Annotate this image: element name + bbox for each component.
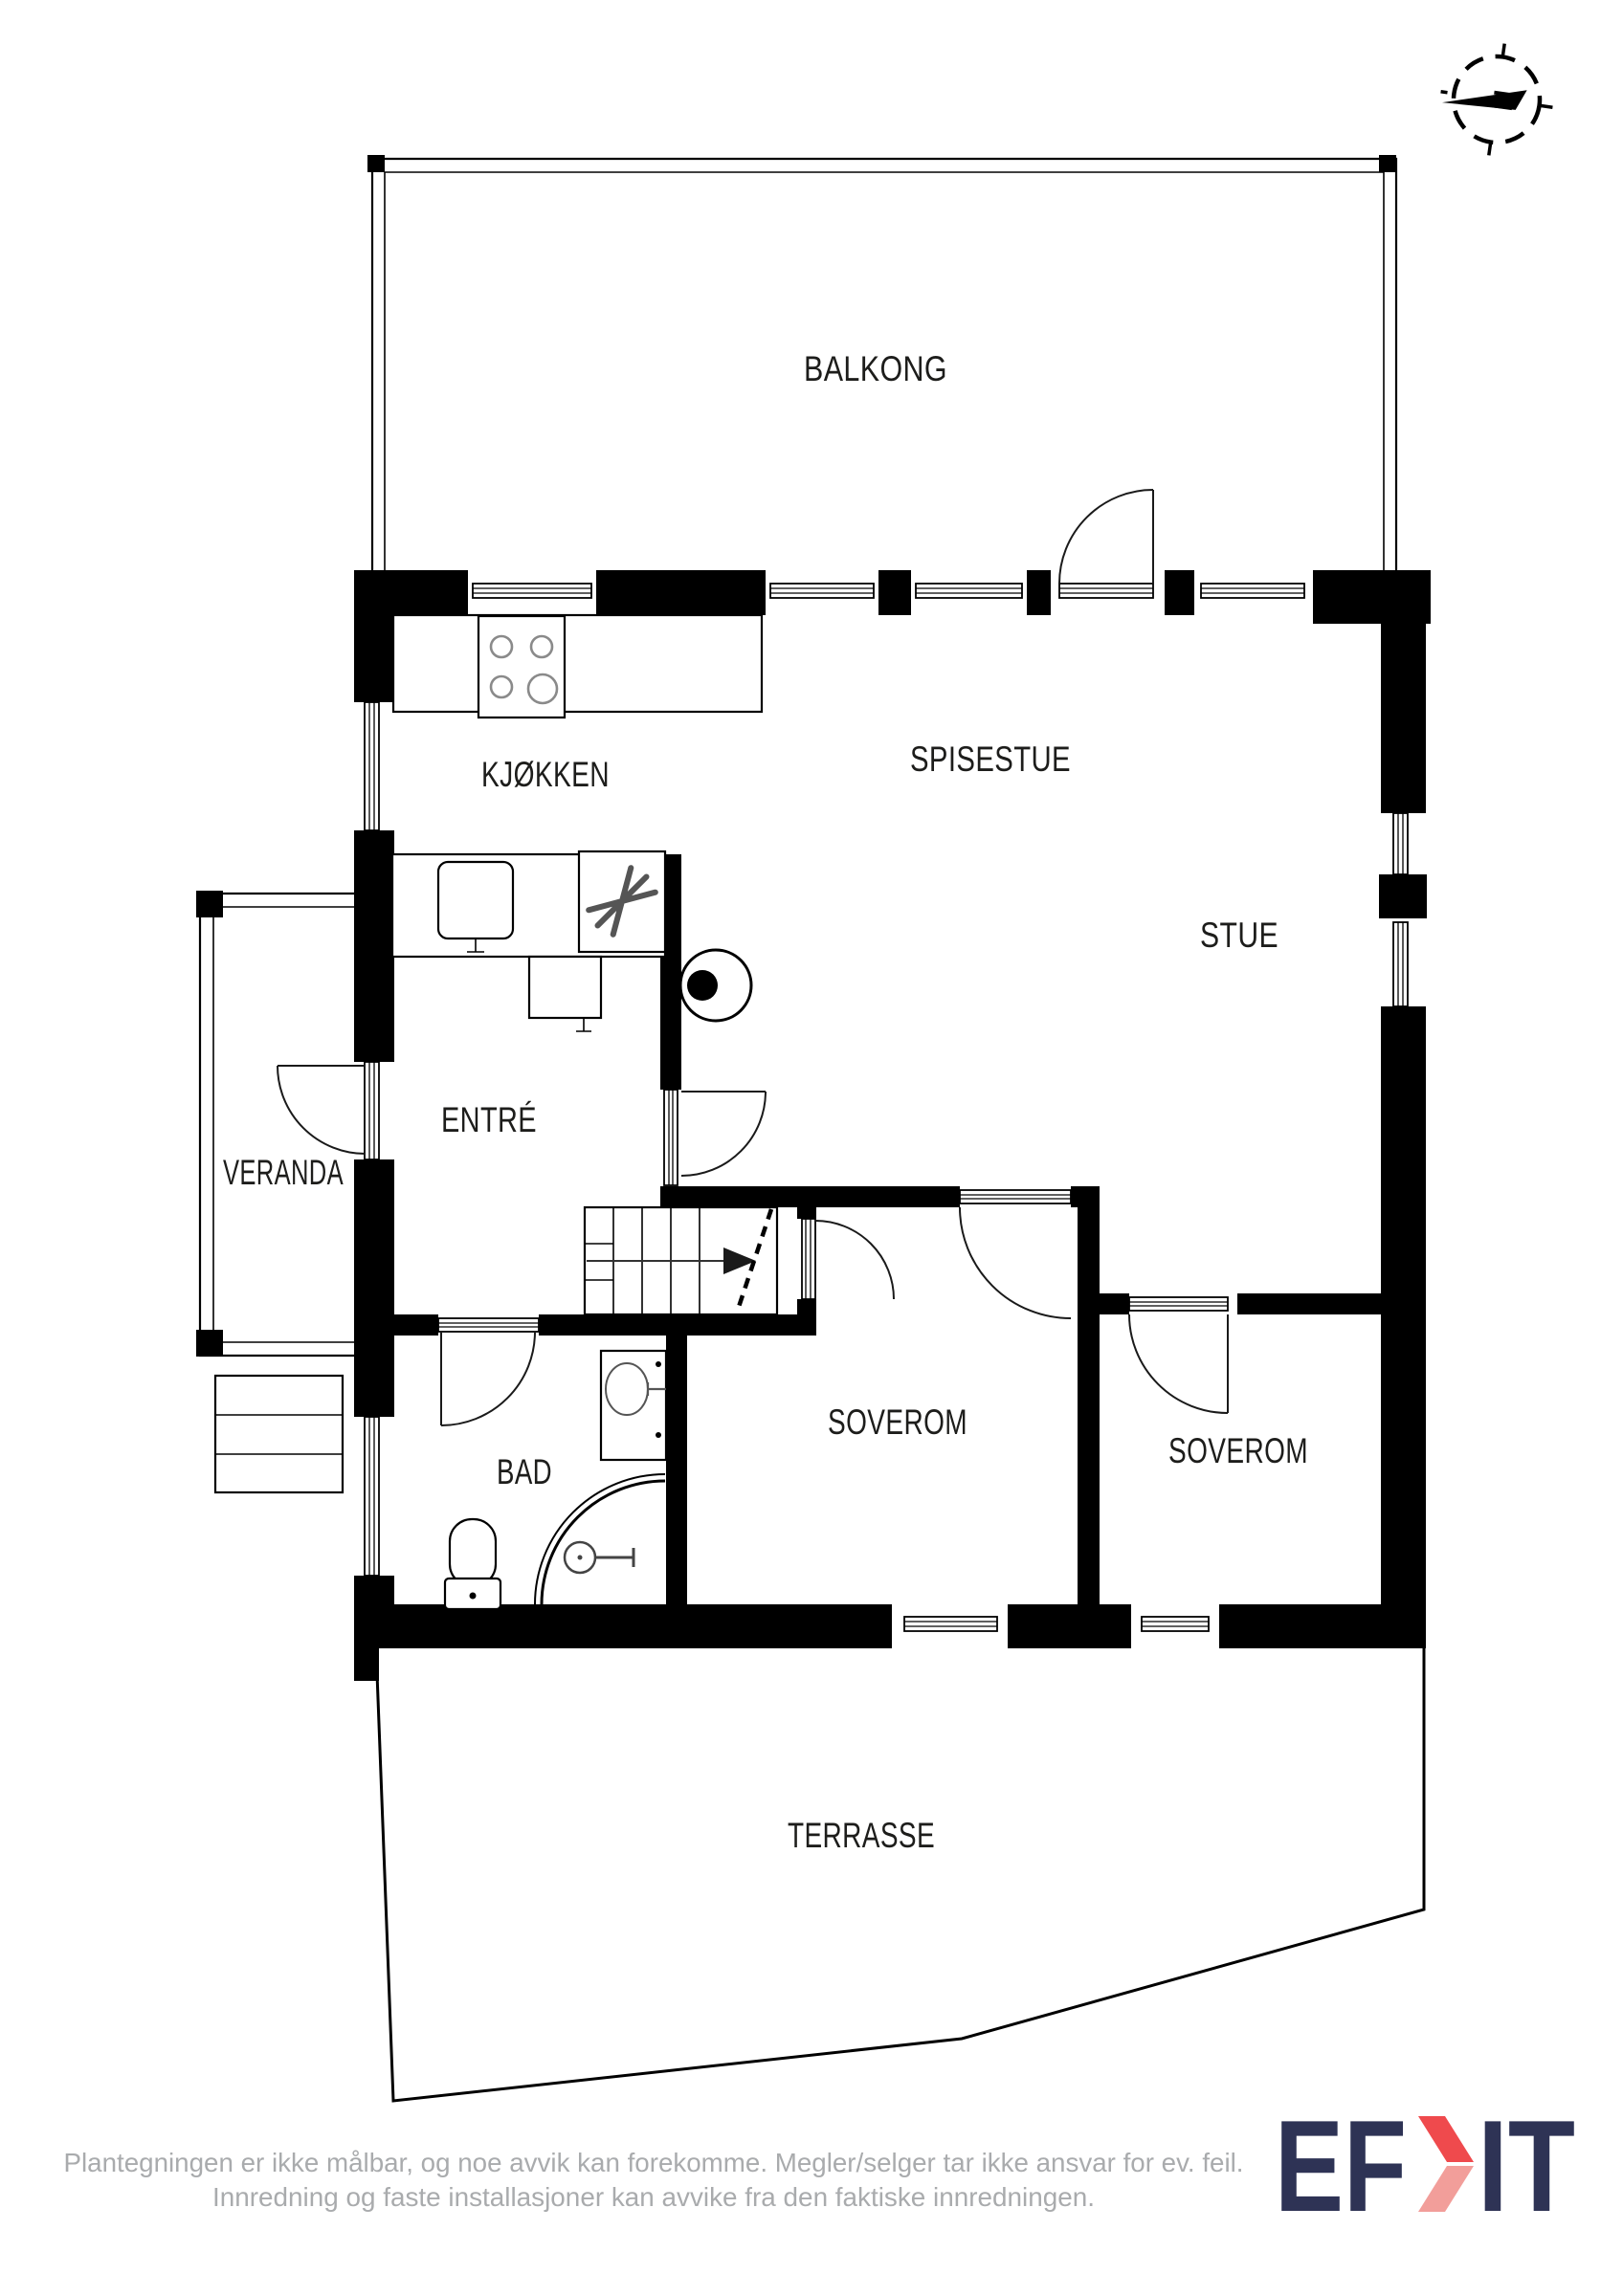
compass-icon: N	[1433, 35, 1560, 163]
disclaimer-line-1: Plantegningen er ikke målbar, og noe avv…	[64, 2148, 1244, 2177]
shower-icon	[535, 1474, 665, 1604]
room-label-entre: ENTRÉ	[441, 1100, 537, 1139]
logo-chevron-lower-icon	[1418, 2166, 1474, 2212]
disclaimer: Plantegningen er ikke målbar, og noe avv…	[64, 2148, 1244, 2212]
room-label-balkong: BALKONG	[804, 349, 947, 388]
room-label-spisestue: SPISESTUE	[910, 740, 1071, 779]
logo-text-it: IT	[1478, 2093, 1575, 2239]
veranda-steps	[215, 1376, 343, 1492]
terrace-outline	[376, 1648, 1424, 2101]
wood-stove-icon	[680, 950, 751, 1021]
veranda-railing	[196, 891, 354, 1357]
room-label-soverom-2: SOVEROM	[1168, 1431, 1308, 1470]
north-label: N	[1487, 88, 1522, 113]
logo-text-ef: EF	[1275, 2093, 1407, 2239]
kitchen-counter	[393, 615, 762, 712]
bathroom-sink-icon	[601, 1351, 666, 1460]
room-label-soverom-1: SOVEROM	[828, 1402, 967, 1442]
toilet-icon	[445, 1519, 500, 1609]
staircase	[585, 1207, 777, 1314]
stove-icon	[478, 616, 565, 717]
logo-chevron-upper-icon	[1418, 2116, 1474, 2162]
room-label-veranda: VERANDA	[223, 1153, 344, 1192]
efkt-logo: EF IT	[1275, 2093, 1575, 2239]
room-label-bad: BAD	[497, 1452, 552, 1491]
kitchen-sink-icon	[438, 862, 513, 952]
fan-icon	[579, 851, 665, 952]
floor-plan-drawing: BALKONG KJØKKEN SPISESTUE STUE ENTRÉ VER…	[0, 0, 1623, 2296]
room-label-kjokken: KJØKKEN	[481, 755, 610, 794]
kitchen-lower-counter	[529, 957, 601, 1031]
room-label-terrasse: TERRASSE	[788, 1816, 935, 1855]
disclaimer-line-2: Innredning og faste installasjoner kan a…	[212, 2182, 1095, 2212]
floor-plan-page: BALKONG KJØKKEN SPISESTUE STUE ENTRÉ VER…	[0, 0, 1623, 2296]
room-label-stue: STUE	[1200, 916, 1278, 955]
